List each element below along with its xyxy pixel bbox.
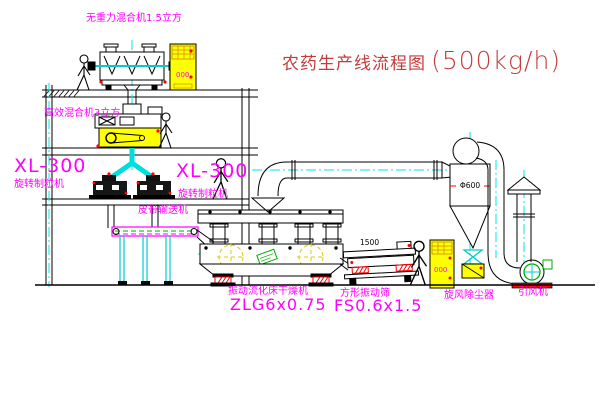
- sieve-spring: [352, 267, 368, 274]
- spring-mount: [313, 277, 329, 283]
- label-granulator-mid-name: 旋转制粒机: [178, 190, 228, 201]
- title-capacity: (500kg/h): [431, 46, 561, 75]
- cabinet-display-text: 000: [176, 71, 189, 79]
- label-gravity-mixer: 无重力混合机1.5立方: [86, 14, 182, 25]
- cyclone-discharge: [464, 250, 482, 264]
- label-granulator-left-name: 旋转制粒机: [14, 180, 64, 191]
- control-cabinet-1: 000: [170, 44, 196, 90]
- belt-conveyor: [112, 227, 214, 285]
- cyclone-diameter-dim: Φ600: [460, 181, 480, 190]
- cabinet-display-text: 000: [434, 266, 447, 274]
- spring-mount: [215, 277, 231, 283]
- fluid-bed-dryer: [198, 210, 352, 286]
- granulator-left: [89, 172, 131, 228]
- person-figure: [77, 55, 90, 90]
- label-dryer-model: ZLG6x0.75: [230, 297, 327, 314]
- induced-draft-fan: [512, 260, 552, 288]
- cyclone-separator: Φ600: [450, 138, 490, 278]
- label-granulator-left-model: XL-300: [14, 157, 86, 177]
- label-belt-conveyor: 皮带输送机: [138, 206, 188, 217]
- exhaust-duct: [252, 160, 452, 212]
- label-fan: 引风机: [518, 288, 548, 299]
- label-cyclone: 旋风除尘器: [444, 291, 494, 302]
- y-duct: [109, 148, 155, 179]
- vibrating-sieve: [343, 241, 419, 285]
- sieve-spring: [396, 264, 412, 271]
- label-high-eff-mixer: 高效混合机3立方: [44, 109, 120, 120]
- label-sieve-model: FS0.6x1.5: [334, 298, 422, 315]
- granulator-right: [133, 172, 175, 228]
- page-title: 农药生产线流程图 (500kg/h): [282, 46, 561, 75]
- control-cabinet-2: 000: [430, 240, 454, 288]
- label-granulator-mid-model: XL-300: [176, 162, 248, 182]
- rain-cap: [508, 177, 540, 190]
- conveyor-legs: [120, 236, 170, 283]
- sieve-length-dim: 1500: [360, 238, 379, 247]
- title-text: 农药生产线流程图: [282, 54, 426, 74]
- diagram-canvas: 000: [0, 0, 600, 403]
